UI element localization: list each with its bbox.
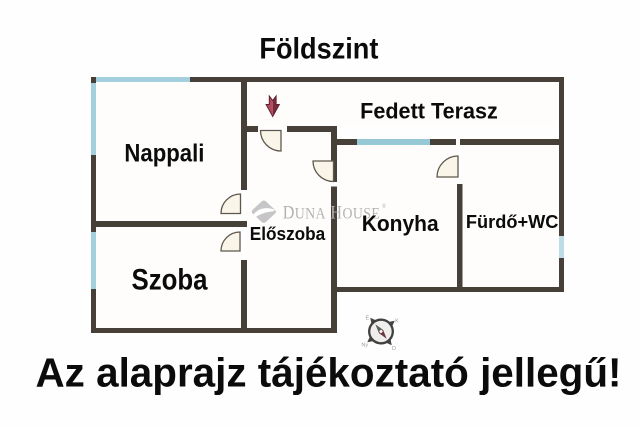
svg-text:Földszint: Földszint [259, 33, 378, 66]
svg-text:Fürdő+WC: Fürdő+WC [466, 212, 559, 232]
svg-text:K: K [395, 319, 399, 325]
svg-text:Konyha: Konyha [362, 211, 439, 236]
svg-text:Fedett Terasz: Fedett Terasz [360, 98, 498, 123]
svg-text:Az alaprajz tájékoztató jelleg: Az alaprajz tájékoztató jellegű! [36, 350, 622, 396]
svg-text:®: ® [382, 203, 387, 210]
svg-text:Nappali: Nappali [124, 140, 204, 168]
svg-text:Ny: Ny [361, 342, 368, 348]
svg-text:Szoba: Szoba [132, 263, 209, 296]
svg-text:Előszoba: Előszoba [250, 223, 326, 244]
svg-text:É: É [365, 315, 369, 322]
